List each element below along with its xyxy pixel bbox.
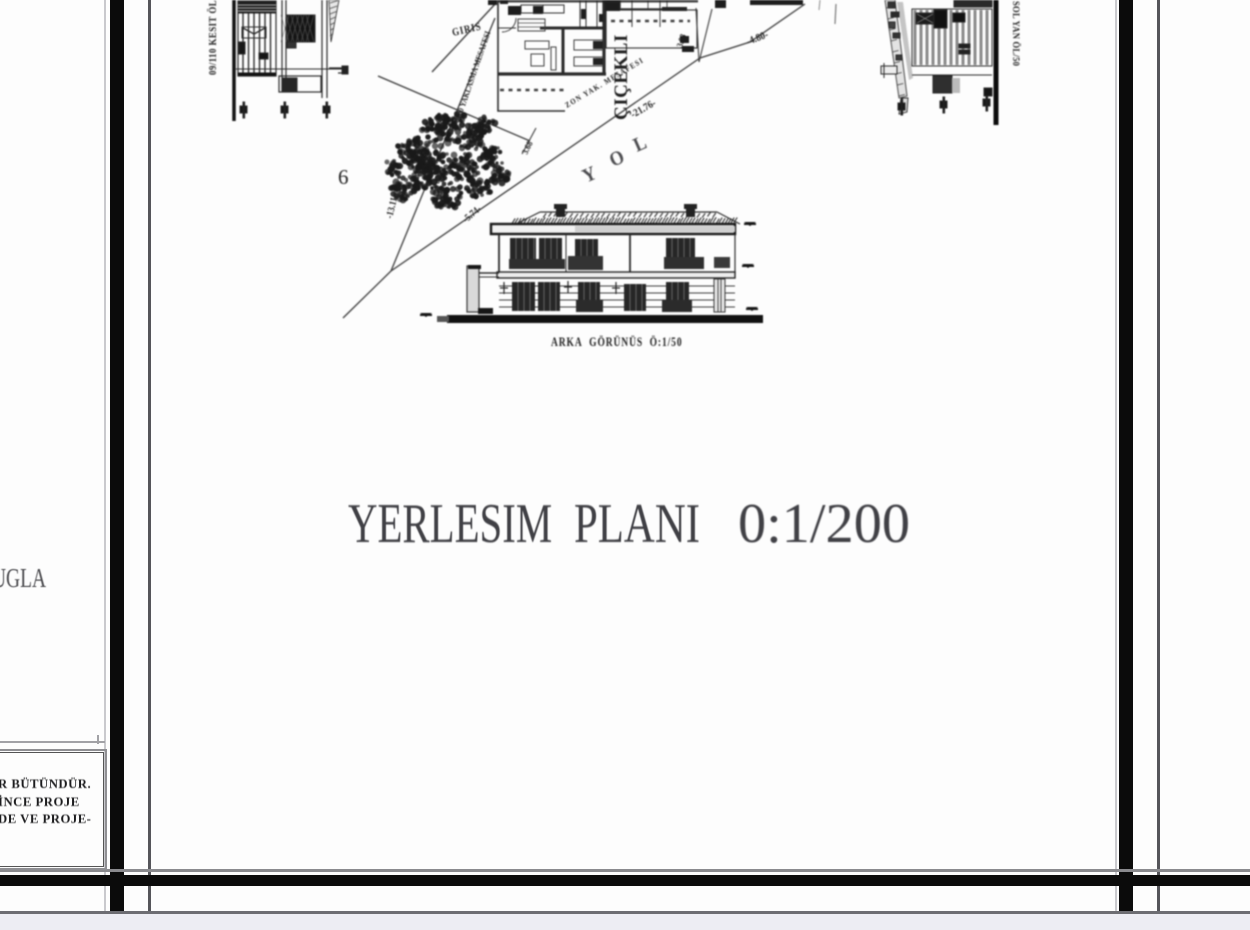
svg-text:-5.74-: -5.74- — [461, 204, 484, 225]
svg-text:GIRIS: GIRIS — [451, 21, 483, 39]
svg-text:-4.80-: -4.80- — [745, 29, 770, 48]
svg-text:ARKA GÖRÜNÜS Ö:1/50: ARKA GÖRÜNÜS Ö:1/50 — [551, 335, 682, 350]
svg-text:Y: Y — [579, 162, 600, 188]
svg-text:-21.76-: -21.76- — [629, 98, 658, 121]
svg-text:6: 6 — [338, 165, 349, 189]
svg-text:L: L — [630, 132, 650, 157]
svg-text:09/110 KESIT ÖL/50: 09/110 KESIT ÖL/50 — [205, 0, 219, 75]
svg-text:ÇIÇEKLI: ÇIÇEKLI — [611, 34, 632, 120]
svg-text:3.68: 3.68 — [520, 140, 535, 156]
svg-text:O: O — [606, 146, 628, 172]
svg-text:SOL YAN ÖL/50: SOL YAN ÖL/50 — [1011, 1, 1021, 67]
svg-text:-13.11-: -13.11- — [385, 194, 401, 220]
